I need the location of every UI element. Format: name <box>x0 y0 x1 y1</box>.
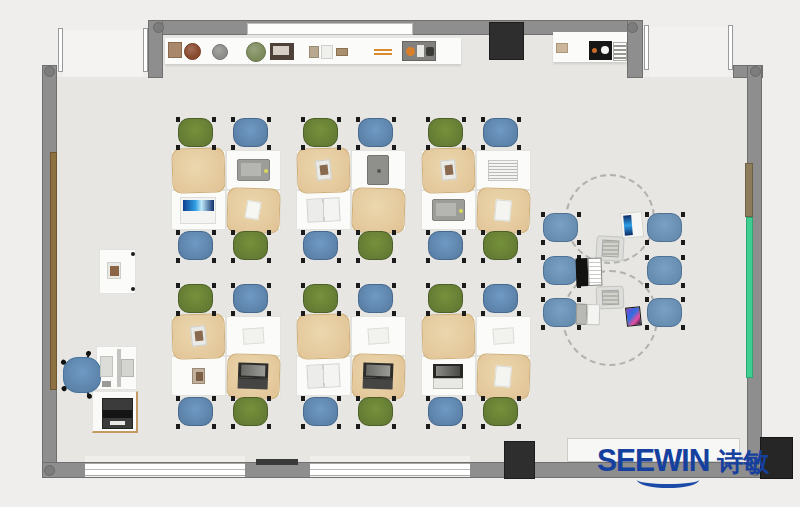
chair-seat <box>647 213 682 242</box>
chair-foot <box>426 424 430 429</box>
collab-chair <box>645 255 686 288</box>
tablet-screen <box>623 215 633 236</box>
chair-foot <box>301 311 305 316</box>
pencil-pair <box>374 49 392 51</box>
chair-foot <box>337 258 341 263</box>
tablet-white-blue <box>180 197 216 224</box>
laptop-keyboard <box>588 258 603 286</box>
door-jamb <box>143 28 148 72</box>
chair-foot <box>462 424 466 429</box>
closed-book <box>439 159 456 180</box>
book-cover <box>444 165 453 176</box>
chair-foot <box>337 424 341 429</box>
chair-foot <box>231 145 235 150</box>
chair-foot <box>392 424 396 429</box>
chair-seat <box>233 284 268 313</box>
chair-foot <box>212 311 216 316</box>
panel-green-right <box>746 217 753 378</box>
closed-book <box>314 159 331 180</box>
chair-foot <box>231 258 235 263</box>
tablet-dark-dot <box>377 169 381 173</box>
chair-foot <box>392 117 396 122</box>
paper-sheet <box>242 327 264 344</box>
cabinet-black-bottom <box>504 441 535 479</box>
chair-foot <box>426 311 430 316</box>
student-chair <box>231 283 272 316</box>
laptop-screen-content <box>241 365 265 377</box>
door-jamb <box>728 25 733 70</box>
doorway-right-floor <box>649 27 728 77</box>
paper-sheet <box>367 327 389 344</box>
chair-seat <box>543 213 578 242</box>
chair-foot <box>356 258 360 263</box>
window-bottom-mid <box>310 463 470 477</box>
student-chair <box>481 283 522 316</box>
chair-foot <box>517 396 521 401</box>
deco-box <box>168 42 182 58</box>
paper-sheet <box>494 199 512 221</box>
photo-frame <box>270 43 294 60</box>
trinket-tray <box>402 41 436 61</box>
student-chair <box>426 230 467 263</box>
notebook-striped <box>488 160 518 181</box>
wall-corner-cap <box>750 66 761 77</box>
chair-foot <box>212 230 216 235</box>
brand-logo-cn: 诗敏 <box>717 447 769 477</box>
chair-foot <box>541 283 545 288</box>
chair-foot <box>392 230 396 235</box>
closed-book <box>189 325 206 346</box>
chair-foot <box>267 311 271 316</box>
student-chair <box>481 117 522 150</box>
chair-seat <box>178 284 213 313</box>
floor-plan-canvas: SEEWIN诗敏 <box>0 0 800 507</box>
speaker-black <box>589 41 612 60</box>
collab-chair <box>645 297 686 330</box>
student-chair <box>301 283 342 316</box>
brand-logo: SEEWIN诗敏 <box>597 444 769 480</box>
laptop-keyboard <box>238 377 268 389</box>
doorway-left-floor <box>63 30 143 77</box>
window-sill <box>310 456 470 462</box>
chair-foot <box>481 424 485 429</box>
chair-foot <box>356 424 360 429</box>
laptop-keyboard <box>587 304 601 325</box>
chair-foot <box>681 255 685 260</box>
chair-seat <box>178 231 213 260</box>
laptop-dark <box>238 362 269 389</box>
student-chair <box>426 396 467 429</box>
tablet-gray <box>432 199 465 221</box>
chair-foot <box>577 212 581 217</box>
chair-wheel <box>85 350 91 356</box>
chair-foot <box>541 240 545 245</box>
laptop-dark <box>433 364 463 389</box>
desk-mat <box>351 187 405 233</box>
student-chair <box>426 117 467 150</box>
chair-foot <box>212 424 216 429</box>
chair-foot <box>176 424 180 429</box>
collab-chair <box>541 212 582 245</box>
student-chair <box>301 117 342 150</box>
chair-foot <box>577 240 581 245</box>
floor-main <box>57 77 747 462</box>
student-chair <box>301 230 342 263</box>
chair-seat <box>358 231 393 260</box>
chair-foot <box>212 258 216 263</box>
chair-foot <box>392 258 396 263</box>
chair-seat <box>647 298 682 327</box>
cabinet-black-top <box>489 22 524 60</box>
chair-foot <box>267 145 271 150</box>
tablet-gray-dot <box>459 209 463 213</box>
teacher-small-item <box>102 381 111 387</box>
student-chair <box>356 396 397 429</box>
tablet-gray-inner <box>436 203 456 216</box>
door-jamb <box>644 25 649 70</box>
pad-inner <box>602 240 620 258</box>
chair-seat <box>233 397 268 426</box>
chair-foot <box>231 424 235 429</box>
chair-foot <box>392 396 396 401</box>
chair-foot <box>337 311 341 316</box>
chair-foot <box>645 325 649 330</box>
student-chair <box>481 396 522 429</box>
chair-seat <box>358 397 393 426</box>
chair-foot <box>462 311 466 316</box>
deco-beige <box>556 43 568 53</box>
collab-phone <box>625 306 642 326</box>
side-table-item <box>107 262 121 279</box>
table-foot <box>131 252 135 256</box>
deco-card <box>321 45 333 59</box>
laptop-screen <box>576 304 588 325</box>
laptop-keyboard <box>363 377 393 389</box>
student-chair <box>176 117 217 150</box>
chair-foot <box>176 258 180 263</box>
chair-foot <box>267 283 271 288</box>
chair-foot <box>267 117 271 122</box>
collab-chair <box>645 212 686 245</box>
chair-foot <box>337 117 341 122</box>
chair-foot <box>517 258 521 263</box>
desk-mat <box>421 313 475 359</box>
laptop-screen-content <box>436 366 460 376</box>
chair-foot <box>462 145 466 150</box>
small-item <box>192 368 205 384</box>
open-book <box>306 197 340 223</box>
student-chair <box>231 117 272 150</box>
side-item-inner <box>110 266 119 276</box>
chair-seat <box>543 298 578 327</box>
collab-tablet-white <box>620 211 644 239</box>
paper-sheet <box>492 327 514 344</box>
chair-seat <box>233 231 268 260</box>
photo-frame-inner <box>273 46 289 55</box>
table-foot <box>131 287 135 291</box>
deco-plant <box>246 42 266 62</box>
cam-dot <box>592 48 597 53</box>
chair-foot <box>462 258 466 263</box>
chair-seat <box>647 256 682 285</box>
chair-foot <box>681 240 685 245</box>
monitor-screen <box>121 359 134 377</box>
chair-seat <box>483 231 518 260</box>
book-cover <box>194 331 203 342</box>
chair-foot <box>462 283 466 288</box>
laptop-keyboard <box>433 378 463 389</box>
chair-foot <box>577 325 581 330</box>
chair-foot <box>356 311 360 316</box>
student-chair <box>231 230 272 263</box>
chair-seat <box>428 231 463 260</box>
chair-seat <box>178 397 213 426</box>
chair-foot <box>231 311 235 316</box>
chair-foot <box>337 145 341 150</box>
chair-seat <box>483 284 518 313</box>
chair-seat <box>358 284 393 313</box>
rack-striped <box>613 42 627 61</box>
deco-small <box>309 46 319 58</box>
window-bottom-left <box>85 463 245 477</box>
chair-seat <box>483 397 518 426</box>
chair-seat <box>543 256 578 285</box>
student-chair <box>176 230 217 263</box>
chair-foot <box>176 145 180 150</box>
panel-brown-right <box>745 163 753 217</box>
whiteboard-top <box>247 23 413 35</box>
small-item-inner <box>196 372 203 381</box>
chair-foot <box>267 424 271 429</box>
wall-corner-cap <box>44 66 55 77</box>
pencil-pair <box>374 53 392 55</box>
chair-foot <box>577 297 581 302</box>
chair-foot <box>517 117 521 122</box>
desk-mat <box>171 147 225 193</box>
printer-slot <box>110 421 125 425</box>
chair-foot <box>681 212 685 217</box>
chair-foot <box>517 145 521 150</box>
chair-foot <box>212 396 216 401</box>
door-jamb <box>58 28 63 72</box>
teacher-papers <box>100 356 113 377</box>
cam-lens <box>601 46 609 54</box>
open-book <box>306 363 340 389</box>
chair-foot <box>481 145 485 150</box>
chair-foot <box>462 117 466 122</box>
chair-foot <box>267 230 271 235</box>
chair-foot <box>392 311 396 316</box>
chair-seat <box>428 284 463 313</box>
chair-foot <box>176 311 180 316</box>
trinket-white <box>417 45 424 57</box>
chair-foot <box>517 424 521 429</box>
deco-small-2 <box>336 48 348 56</box>
tablet-gray-dot <box>264 169 268 173</box>
chair-foot <box>267 258 271 263</box>
desk-mat <box>296 313 350 359</box>
laptop-screen <box>576 258 589 286</box>
collab-laptop-silver <box>576 304 602 326</box>
deco-pot <box>184 43 201 60</box>
chair-seat <box>358 118 393 147</box>
chair-foot <box>337 283 341 288</box>
student-chair <box>356 230 397 263</box>
tablet-dark <box>367 155 389 185</box>
chair-foot <box>541 325 545 330</box>
chair-foot <box>462 396 466 401</box>
collab-laptop-black <box>576 258 604 287</box>
chair-foot <box>517 230 521 235</box>
wall-corner-cap <box>44 465 55 476</box>
chair-foot <box>212 117 216 122</box>
trinket-dark <box>426 47 434 56</box>
student-chair <box>426 283 467 316</box>
chair-foot <box>392 145 396 150</box>
book-cover <box>319 165 328 176</box>
chair-foot <box>681 297 685 302</box>
chair-seat <box>483 118 518 147</box>
tablet-screen <box>183 200 214 211</box>
chair-seat <box>233 118 268 147</box>
chair-foot <box>356 145 360 150</box>
chair-seat <box>428 397 463 426</box>
chair-foot <box>481 258 485 263</box>
wall-corner-cap <box>153 22 164 33</box>
chair-foot <box>301 258 305 263</box>
tablet-gray <box>237 159 270 181</box>
laptop-screen-content <box>366 365 390 377</box>
chair-seat <box>303 118 338 147</box>
brand-logo-smile-icon <box>637 472 699 488</box>
chair-foot <box>301 424 305 429</box>
chair-foot <box>392 283 396 288</box>
chair-seat <box>178 118 213 147</box>
chair-foot <box>337 230 341 235</box>
chair-foot <box>681 325 685 330</box>
chair-foot <box>645 240 649 245</box>
chair-seat <box>63 357 101 393</box>
chair-foot <box>517 311 521 316</box>
laptop-dark <box>363 362 394 389</box>
window-sill <box>85 456 245 462</box>
deco-sphere <box>212 44 228 60</box>
chair-foot <box>481 311 485 316</box>
trinket-orange <box>406 47 415 56</box>
student-chair <box>176 283 217 316</box>
tablet-gray-inner <box>241 163 261 176</box>
pad-inner <box>602 290 620 306</box>
heater-dark-strip <box>256 459 298 465</box>
chair-foot <box>337 396 341 401</box>
chair-seat <box>303 284 338 313</box>
paper-sheet <box>494 365 512 387</box>
chair-seat <box>428 118 463 147</box>
student-chair <box>481 230 522 263</box>
chair-foot <box>517 283 521 288</box>
chair-wheel <box>86 393 92 399</box>
printer <box>102 398 133 429</box>
chair-foot <box>426 258 430 263</box>
student-chair <box>176 396 217 429</box>
printer-band <box>103 410 132 418</box>
chair-seat <box>303 397 338 426</box>
wall-corner-cap <box>627 22 638 33</box>
chair-foot <box>267 396 271 401</box>
chair-foot <box>212 283 216 288</box>
chair-foot <box>462 230 466 235</box>
chair-seat <box>303 231 338 260</box>
student-chair <box>356 283 397 316</box>
student-chair <box>301 396 342 429</box>
chair-foot <box>426 145 430 150</box>
student-chair <box>231 396 272 429</box>
chair-foot <box>301 145 305 150</box>
chair-foot <box>212 145 216 150</box>
chair-foot <box>645 283 649 288</box>
student-chair <box>356 117 397 150</box>
chair-foot <box>681 283 685 288</box>
